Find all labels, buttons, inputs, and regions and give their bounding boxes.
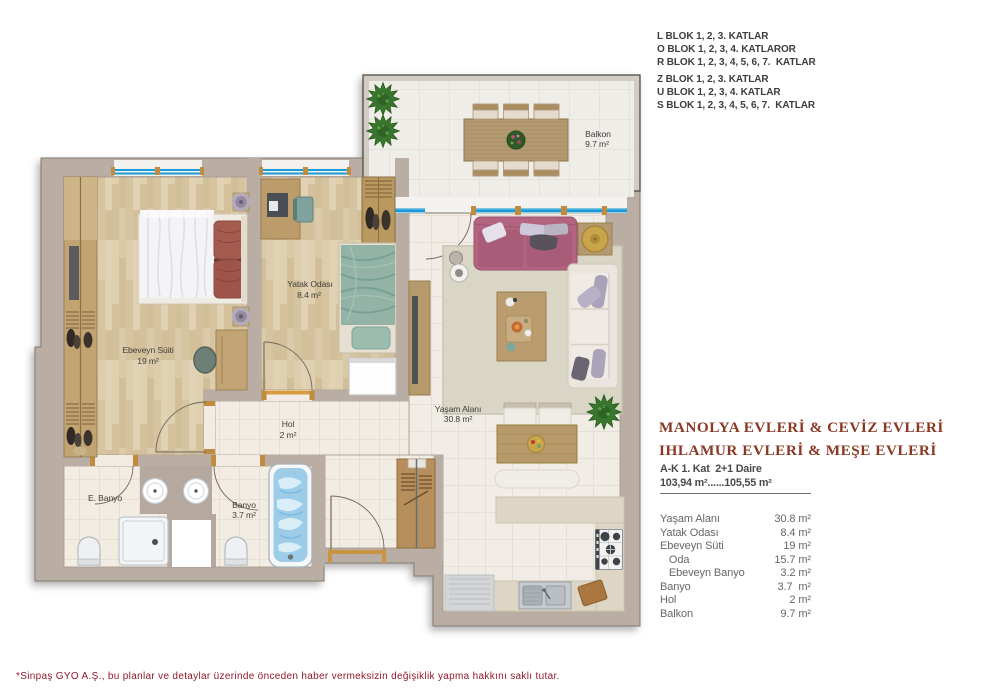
svg-text:19 m²: 19 m²: [137, 356, 159, 366]
svg-text:30.8 m²: 30.8 m²: [444, 414, 473, 424]
svg-text:Balkon: Balkon: [585, 129, 611, 139]
svg-text:8.4 m²: 8.4 m²: [297, 290, 321, 300]
svg-text:Yatak Odası: Yatak Odası: [287, 279, 333, 289]
svg-text:Yaşam Alanı: Yaşam Alanı: [435, 404, 482, 414]
svg-text:E. Banyo: E. Banyo: [88, 493, 122, 503]
svg-text:Hol: Hol: [282, 419, 295, 429]
svg-text:Ebeveyn Süiti: Ebeveyn Süiti: [122, 345, 173, 355]
svg-text:3.7 m²: 3.7 m²: [232, 510, 256, 520]
svg-text:9.7 m²: 9.7 m²: [585, 139, 609, 149]
svg-text:Banyo: Banyo: [232, 500, 256, 510]
svg-text:2 m²: 2 m²: [280, 430, 297, 440]
